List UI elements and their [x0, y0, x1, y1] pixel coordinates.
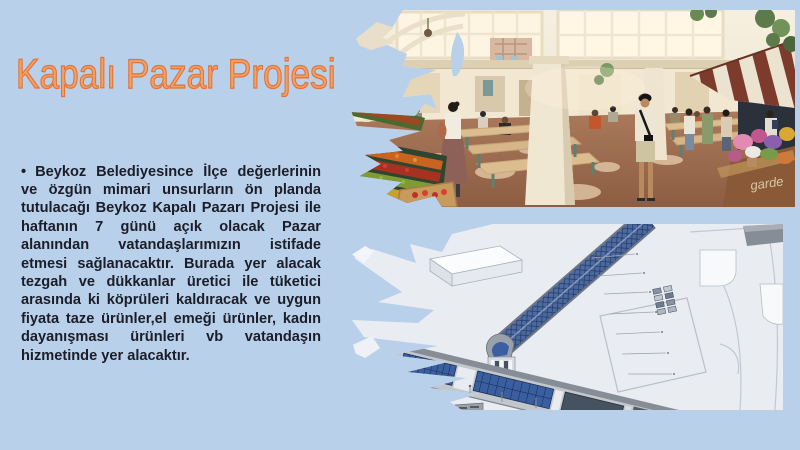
body-paragraph: Beykoz Belediyesince İlçe değerlerinin v… — [21, 164, 321, 364]
market-interior-render: garde — [345, 10, 795, 207]
torn-fragment-white-2 — [353, 336, 380, 358]
market-interior-image: garde — [345, 10, 795, 207]
slide-title: Kapalı Pazar Projesi — [16, 50, 336, 98]
slide-canvas: Kapalı Pazar Projesi •Beykoz Belediyesin… — [0, 0, 800, 450]
aerial-market-render — [350, 224, 783, 414]
bullet-icon: • — [21, 164, 26, 180]
entrance-sign — [455, 403, 483, 413]
aerial-market-image — [350, 224, 783, 414]
light-haze — [525, 66, 645, 110]
slide-body-text: •Beykoz Belediyesince İlçe değerlerinin … — [21, 163, 321, 365]
